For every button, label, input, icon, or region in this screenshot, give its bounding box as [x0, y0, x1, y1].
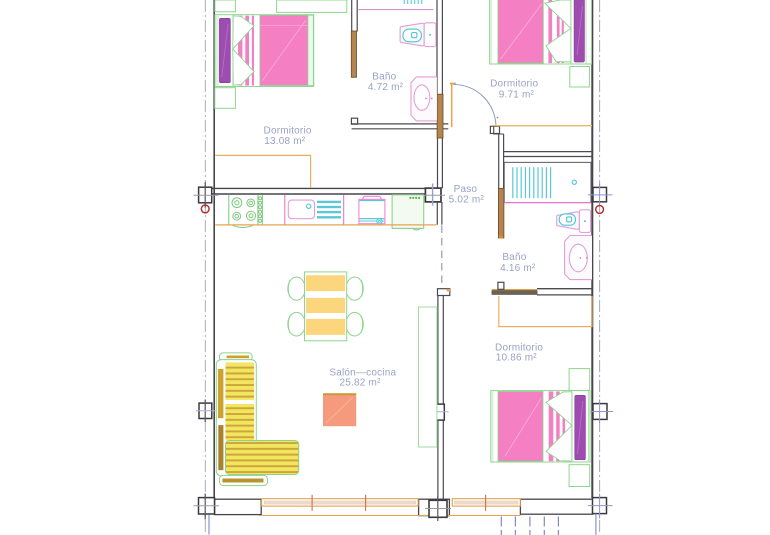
svg-text:Baño: Baño	[502, 252, 526, 263]
svg-text:25.82 m²: 25.82 m²	[340, 378, 382, 389]
svg-text:Baño: Baño	[372, 71, 396, 82]
svg-text:Dormitorio: Dormitorio	[264, 126, 312, 137]
svg-text:4.16 m²: 4.16 m²	[500, 263, 536, 274]
svg-text:4.72 m²: 4.72 m²	[368, 82, 404, 93]
svg-text:9.71 m²: 9.71 m²	[499, 89, 535, 100]
svg-text:10.86 m²: 10.86 m²	[496, 353, 538, 364]
svg-text:13.08 m²: 13.08 m²	[264, 136, 306, 147]
svg-text:Dormitorio: Dormitorio	[490, 79, 538, 90]
svg-text:5.02 m²: 5.02 m²	[449, 195, 485, 206]
